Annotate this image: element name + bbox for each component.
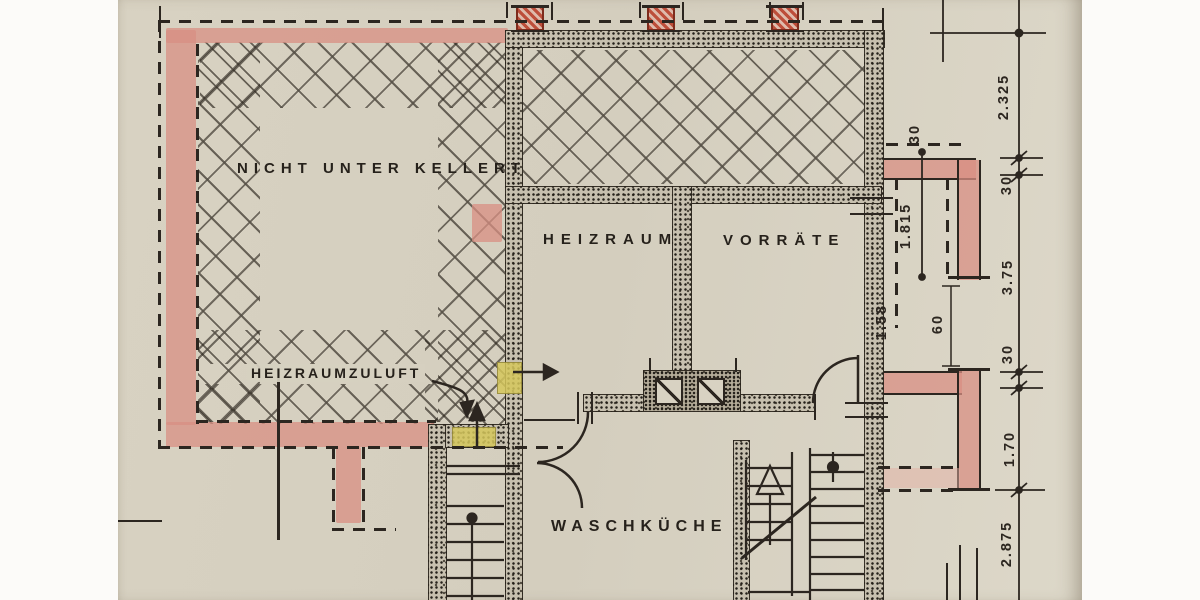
room-label-vorraete: VORRÄTE [723, 232, 845, 249]
door-arc-waschkueche [537, 463, 582, 508]
dimension-lines [118, 0, 1046, 600]
drawing-overlay [0, 0, 1200, 600]
dim-label-158: 1.58 [874, 287, 890, 357]
dim-label-30-wall: 30 [907, 99, 923, 169]
door-frame-ticks [578, 392, 815, 424]
dim-label-30-upper: 30 [999, 150, 1015, 220]
chimney-ticks [650, 358, 736, 372]
room-label-nicht-unterkellert: NICHT UNTER KELLERT [237, 160, 526, 177]
photo-margin-left [0, 0, 118, 600]
zuluft-connector [432, 381, 467, 404]
door-arc-vorraete [813, 358, 858, 403]
stair-small [446, 466, 520, 600]
column-ticks [507, 2, 803, 20]
photo-margin-right [1082, 0, 1200, 600]
floorplan-canvas: NICHT UNTER KELLERT HEIZRAUM VORRÄTE WAS… [0, 0, 1200, 600]
dim-label-2875: 2.875 [999, 509, 1015, 579]
airflow-arrows [432, 365, 557, 448]
dim-label-60: 60 [930, 289, 946, 359]
room-label-waschkueche: WASCHKÜCHE [551, 518, 727, 536]
dim-label-30-lower: 30 [1000, 319, 1016, 389]
room-label-heizraum: HEIZRAUM [543, 231, 678, 248]
dim-label-1815: 1.815 [898, 191, 914, 261]
stair-main [742, 448, 864, 600]
dim-label-375: 3.75 [1000, 242, 1016, 312]
annotation-heizraumzuluft: HEIZRAUMZULUFT [247, 364, 425, 382]
dim-label-170: 1.70 [1002, 414, 1018, 484]
dim-label-2325: 2.325 [996, 62, 1012, 132]
